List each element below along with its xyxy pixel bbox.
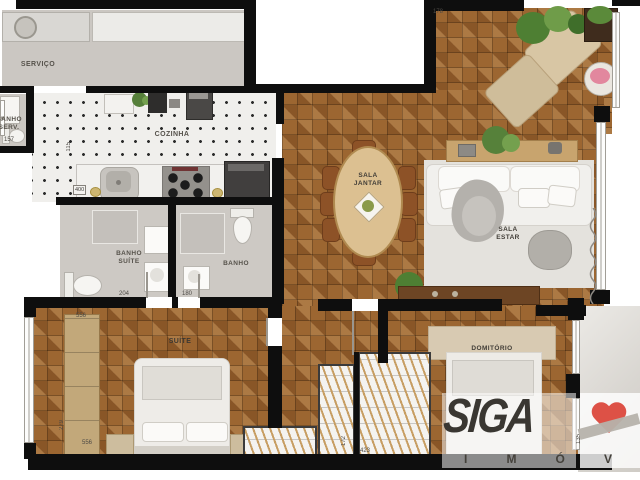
dim-balcony: 178 (433, 9, 443, 15)
suite-bath-toilet (73, 275, 102, 296)
sofa-pillow (518, 188, 550, 208)
room-label-banho-servico: BANHO SERV. (0, 116, 26, 133)
room-label-sala-estar: SALA ESTAR (482, 226, 534, 243)
wall-mid-top (244, 84, 432, 93)
hall-door-opening (352, 299, 378, 311)
room-label-banho: BANHO (210, 260, 262, 268)
suite-pillow (142, 422, 184, 442)
room-label-dormitorio: DOMITÓRIO (446, 345, 538, 353)
microwave (148, 92, 167, 113)
cooktop-knobs (172, 167, 198, 171)
room-label-servico: SERVIÇO (0, 60, 76, 69)
suite-pillow (186, 422, 228, 442)
wall-bedrooms-north (318, 299, 502, 311)
watermark-letter: Ó (556, 452, 565, 466)
washing-machine-door (14, 16, 37, 39)
bath-door-opening (178, 297, 200, 308)
suite-bath-door-opening (146, 297, 172, 308)
watermark-letters: I M Ó V (464, 452, 612, 466)
kitchen-wall-box (104, 94, 134, 114)
wall-servicebath-right (26, 92, 34, 150)
wall-top-left (16, 0, 254, 9)
closet-divider-wall (354, 352, 359, 458)
room-label-sala-jantar: SALA JANTAR (340, 172, 396, 189)
sofa-pillow (547, 184, 577, 207)
curtain (588, 208, 598, 304)
watermark: SIGA I M Ó V (442, 393, 640, 468)
closet-hatch-left (318, 364, 355, 458)
suite-bed-throw (142, 366, 222, 400)
wall-bath-divider (168, 203, 176, 301)
oven-tower-top (189, 93, 208, 99)
pink-flowers (590, 68, 610, 84)
dining-centerpiece-plant (362, 200, 374, 212)
dim-kitchen-depth: 115 (66, 142, 72, 152)
suite-bath-door-leaf (146, 272, 148, 298)
kitchen-faucet (116, 180, 121, 185)
suite-wardrobe (64, 314, 100, 456)
service-cabinet (92, 12, 246, 42)
wall-dorm-right-top (568, 298, 584, 320)
dim-suite-side: 279 (59, 420, 65, 430)
wall-kitchen-dining-stub (276, 90, 284, 124)
dim-service-bath: 157 (4, 137, 14, 143)
suite-window (24, 317, 34, 443)
wall-bath-right (272, 158, 284, 304)
pouf (528, 230, 572, 270)
wall-top-right (612, 0, 640, 6)
watermark-brand: SIGA (441, 390, 578, 444)
kitchen-small-item (169, 99, 180, 108)
dim-banho-suite: 204 (119, 291, 129, 297)
bath-shower (180, 213, 225, 254)
planter-greens (587, 6, 613, 24)
dim-banho: 180 (182, 291, 192, 297)
room-label-banho-suite: BANHO SUÍTE (100, 250, 158, 267)
dim-suite-bottom: 556 (82, 440, 92, 446)
wall-servicebath-bottom (0, 146, 34, 153)
room-label-suite: SUÍTE (150, 337, 210, 346)
wall-service-right (244, 0, 256, 92)
room-label-cozinha: COZINHA (142, 130, 202, 139)
counter-item-left (90, 187, 101, 197)
bath-door-leaf (198, 274, 200, 298)
suite-bath-shower (92, 210, 138, 244)
floor-plan: SERVIÇO BANHO SERV. COZINHA SALA JANTAR … (0, 0, 640, 480)
fridge-top (228, 164, 264, 171)
dim-suite-top: 556 (76, 313, 86, 319)
room-label-banho-servico-clip: BANHO SERV. (0, 116, 26, 138)
suite-door-leaf (266, 318, 268, 346)
dim-closet: 423 (360, 448, 370, 454)
dim-closet-side: 172 (341, 436, 347, 446)
suite-bath-sink-bowl (150, 268, 164, 282)
sideboard-knob (432, 291, 438, 297)
closet-hatch-right (358, 352, 431, 458)
wall-dorm-left (378, 299, 388, 363)
dorm-window-upper (572, 320, 580, 374)
suite-nightstand (106, 434, 134, 456)
suite-door-opening (268, 318, 282, 346)
watermark-letter: I (464, 452, 467, 466)
watermark-letter: M (506, 452, 516, 466)
service-door-opening (34, 86, 86, 93)
dim-counter: 400 (73, 185, 86, 195)
sideboard-knob (452, 291, 458, 297)
watermark-letter: V (604, 452, 612, 466)
console-plant-leaf (502, 134, 520, 152)
hall-door-leaf (352, 311, 354, 355)
console-decor (548, 142, 562, 154)
balcony-plant (544, 6, 572, 32)
wall-right-joint-top (594, 106, 610, 122)
balcony-window (612, 12, 620, 108)
wall-suite-left-top (24, 297, 36, 317)
suite-headboard (130, 446, 232, 454)
console-item (458, 144, 476, 157)
